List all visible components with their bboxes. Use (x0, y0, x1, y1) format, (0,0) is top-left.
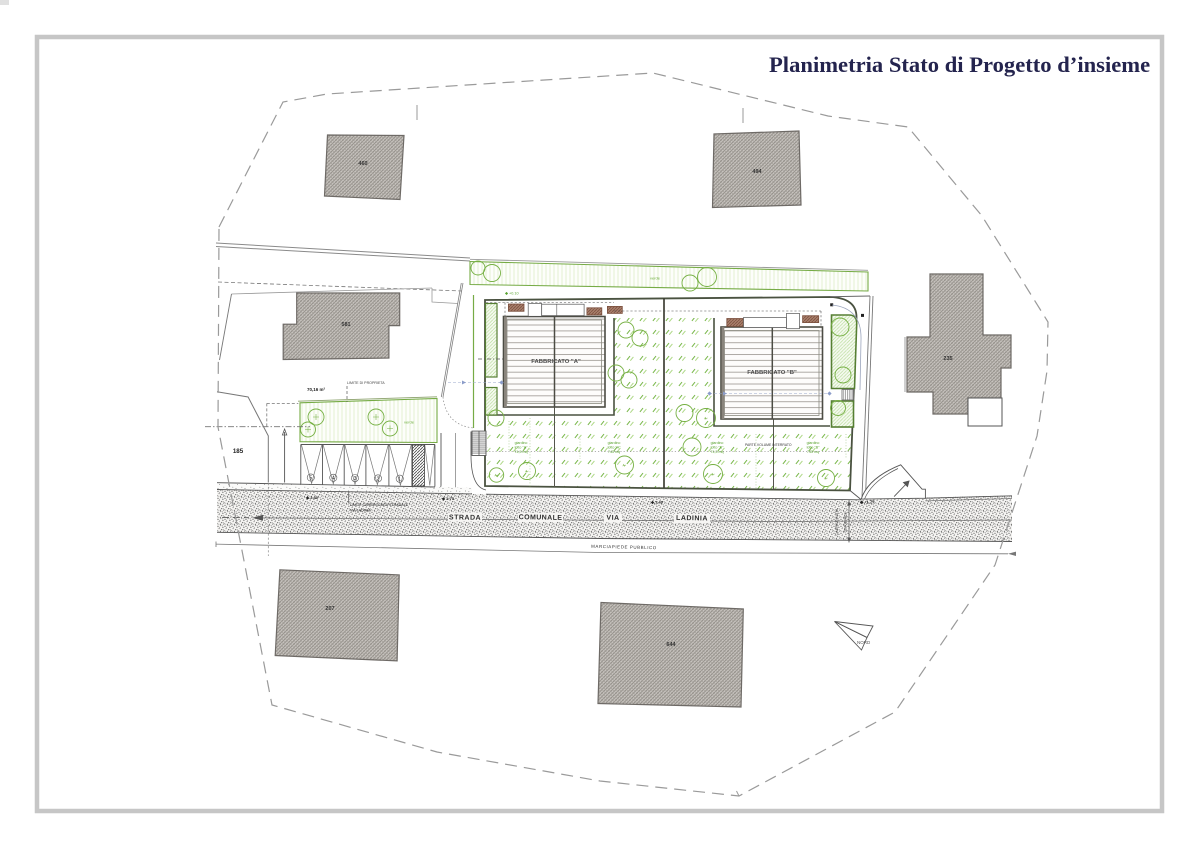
svg-text:giardino: giardino (608, 441, 621, 445)
svg-text:PARTE VOLUME INTERRATO: PARTE VOLUME INTERRATO (745, 443, 792, 447)
svg-text:◆ +0.10: ◆ +0.10 (505, 292, 519, 296)
svg-text:giardino: giardino (711, 441, 724, 445)
svg-text:giardino: giardino (807, 441, 820, 445)
svg-text:235: 235 (943, 356, 952, 362)
svg-text:185: 185 (233, 448, 244, 455)
svg-text:1: 1 (398, 477, 401, 483)
svg-text:◆ 1.40: ◆ 1.40 (650, 500, 664, 505)
svg-text:207: 207 (325, 606, 334, 612)
svg-text:lotto "A": lotto "A" (608, 446, 621, 450)
svg-text:5: 5 (309, 475, 312, 481)
svg-text:◆ 2.40: ◆ 2.40 (305, 495, 319, 500)
svg-text:lotto "B": lotto "B" (711, 446, 724, 450)
svg-text:460: 460 (358, 161, 367, 167)
svg-text:VIA: VIA (606, 515, 619, 522)
svg-text:STRADA: STRADA (449, 514, 481, 522)
svg-text:4: 4 (332, 476, 335, 482)
svg-text:494: 494 (752, 169, 762, 175)
svg-text:◆ -1.77: ◆ -1.77 (859, 500, 875, 505)
svg-text:644: 644 (666, 642, 676, 648)
svg-text:2: 2 (377, 476, 380, 482)
svg-text:LADINIA: LADINIA (676, 515, 708, 523)
svg-text:74,5 mq: 74,5 mq (711, 450, 724, 454)
svg-text:745 mq: 745 mq (608, 450, 620, 454)
svg-text:74,5 mq: 74,5 mq (515, 450, 528, 454)
svg-text:LIMITE CARREGGIATA STRADALE: LIMITE CARREGGIATA STRADALE (350, 503, 409, 507)
svg-text:LIMITE DI PROPRIETA: LIMITE DI PROPRIETA (347, 381, 385, 385)
svg-text:FABBRICATO "B": FABBRICATO "B" (747, 370, 797, 376)
svg-text:lotto "A": lotto "A" (515, 446, 528, 450)
svg-text:CARREGGIATA: CARREGGIATA (835, 508, 839, 536)
svg-text:745 mq: 745 mq (807, 450, 819, 454)
svg-text:verde: verde (404, 420, 415, 425)
svg-text:lotto "B": lotto "B" (807, 446, 820, 450)
svg-text:STRADALE: STRADALE (844, 512, 848, 533)
svg-text:giardino: giardino (515, 441, 528, 445)
svg-text:verde: verde (650, 276, 661, 281)
svg-text:Planimetria Stato di Progetto: Planimetria Stato di Progetto d’insieme (769, 52, 1150, 77)
svg-text:VIA LADINIA: VIA LADINIA (350, 509, 371, 513)
svg-text:FABBRICATO "A": FABBRICATO "A" (531, 359, 581, 365)
svg-text:581: 581 (341, 322, 350, 328)
svg-text:NORD: NORD (857, 640, 871, 645)
svg-text:3: 3 (354, 476, 357, 482)
svg-text:◆ 1.70: ◆ 1.70 (441, 496, 455, 501)
svg-text:70,16 m²: 70,16 m² (307, 387, 326, 392)
svg-text:COMUNALE: COMUNALE (519, 514, 563, 522)
